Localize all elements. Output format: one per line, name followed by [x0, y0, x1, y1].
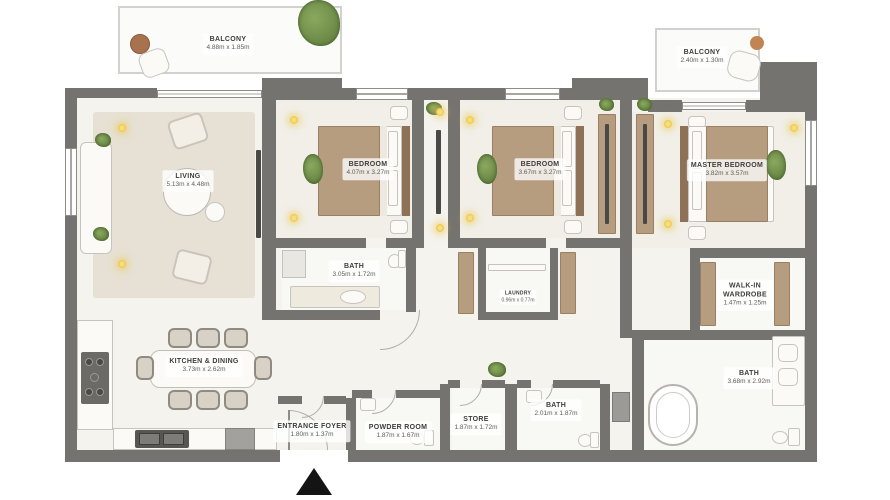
washer	[612, 392, 630, 422]
wardrobe-rail	[643, 124, 647, 224]
tv-unit	[436, 130, 441, 214]
ceiling-light-icon	[118, 124, 126, 132]
room-name: ENTRANCE FOYER	[277, 422, 346, 431]
plant-icon	[637, 98, 652, 111]
wall-bedroom2-bottom	[460, 238, 546, 248]
wall-bottom-right	[348, 450, 817, 462]
room-name: BATH	[333, 262, 376, 271]
room-label-bath2: BATH 2.01m x 1.87m	[531, 399, 582, 421]
wall-top-mid	[408, 88, 505, 100]
dishwasher	[225, 428, 255, 450]
wall-bath2-top-a	[517, 380, 531, 388]
wall-top-block1	[262, 78, 342, 100]
hall-closet	[458, 252, 474, 314]
bed-headboard	[576, 126, 584, 216]
balcony-right-stool	[750, 36, 764, 50]
ceiling-light-icon	[290, 214, 298, 222]
burner-icon	[85, 388, 93, 396]
wardrobe-rail	[605, 124, 609, 224]
sink-basin	[139, 433, 160, 445]
dining-chair	[224, 328, 248, 348]
entrance-arrow-icon	[296, 468, 332, 495]
burner-icon	[90, 373, 99, 382]
plant-icon	[477, 154, 497, 184]
room-dims: 1.87m x 1.72m	[455, 424, 498, 432]
room-dims: 5.13m x 4.48m	[167, 181, 210, 189]
wall-bottom-left	[65, 450, 280, 462]
sink	[340, 290, 366, 304]
room-label-walk-in-wardrobe: WALK-IN WARDROBE 1.47m x 1.25m	[717, 280, 773, 311]
room-label-master-bath: BATH 3.68m x 2.92m	[724, 367, 775, 389]
wall-powder-top-b	[396, 390, 440, 398]
wall-store-top-b	[482, 380, 505, 388]
nightstand	[390, 220, 408, 234]
room-name: BATH	[535, 401, 578, 410]
dining-chair	[224, 390, 248, 410]
ceiling-light-icon	[118, 260, 126, 268]
wall-laundry-bottom	[478, 312, 558, 320]
wall-top-stub1	[342, 88, 356, 100]
vanity-counter	[290, 286, 380, 308]
stove	[81, 352, 109, 404]
wall-top-master-left	[648, 100, 682, 112]
wall-top-living	[65, 88, 157, 98]
room-label-powder-room: POWDER ROOM 1.87m x 1.67m	[365, 421, 432, 443]
toilet-tank	[788, 428, 800, 446]
room-label-store: STORE 1.87m x 1.72m	[451, 413, 502, 435]
wall-top-block2	[572, 78, 648, 100]
ceiling-light-icon	[290, 116, 298, 124]
room-label-laundry: LAUNDRY 0.96m x 0.77m	[499, 290, 536, 305]
room-label-balcony-right: BALCONY 2.40m x 1.30m	[677, 46, 728, 68]
room-dims: 3.73m x 2.62m	[169, 366, 238, 374]
wall-laundry-right	[550, 248, 558, 320]
dining-chair	[254, 356, 272, 380]
plant-icon	[488, 362, 506, 377]
room-name: BEDROOM	[347, 160, 390, 169]
ceiling-light-icon	[436, 108, 444, 116]
room-label-entrance-foyer: ENTRANCE FOYER 1.80m x 1.37m	[273, 420, 350, 442]
room-dims: 1.87m x 1.67m	[369, 432, 428, 440]
toilet-tank	[590, 432, 599, 448]
wall-bath1-bottom	[276, 310, 380, 320]
burner-icon	[96, 358, 104, 366]
ceiling-light-icon	[790, 124, 798, 132]
wall-bath2-right	[600, 384, 610, 450]
wall-left	[65, 88, 77, 462]
room-label-bedroom2: BEDROOM 3.67m x 3.27m	[515, 158, 566, 180]
room-dims: 4.88m x 1.85m	[207, 44, 250, 52]
window-bedroom1	[356, 88, 408, 100]
wall-masterbath-top	[644, 330, 690, 340]
wall-top-right-block	[760, 62, 817, 100]
bathtub-inner	[656, 392, 690, 438]
burner-icon	[96, 388, 104, 396]
room-dims: 2.40m x 1.30m	[681, 57, 724, 65]
ceiling-light-icon	[664, 120, 672, 128]
burner-icon	[85, 358, 93, 366]
wall-foyer-top-b	[324, 396, 346, 404]
plant-icon	[95, 133, 111, 147]
ceiling-light-icon	[436, 224, 444, 232]
wardrobe	[774, 262, 790, 326]
room-name: MASTER BEDROOM	[691, 161, 763, 170]
wall-bedroom1-right	[412, 100, 424, 248]
slider-balcony-right	[682, 102, 746, 110]
room-dims: 1.47m x 1.25m	[721, 300, 769, 308]
bed-headboard	[402, 126, 410, 216]
wall-bedroom2-left	[448, 100, 460, 248]
room-dims: 4.07m x 3.27m	[347, 169, 390, 177]
room-name: KITCHEN & DINING	[169, 357, 238, 366]
ceiling-light-icon	[466, 116, 474, 124]
plant-icon	[766, 150, 786, 180]
room-dims: 0.96m x 0.77m	[501, 297, 534, 304]
wall-masterbath-left	[632, 330, 644, 450]
room-label-bedroom1: BEDROOM 4.07m x 3.27m	[343, 158, 394, 180]
window-master	[805, 120, 817, 186]
room-label-living: LIVING 5.13m x 4.48m	[163, 170, 214, 192]
side-table	[205, 202, 225, 222]
wall-store-bath2	[505, 384, 517, 450]
wall-bedroom1-bottom	[276, 238, 366, 248]
room-name: LIVING	[167, 172, 210, 181]
slider-balcony-left	[157, 90, 262, 98]
ceiling-light-icon	[664, 220, 672, 228]
wall-foyer-top-a	[278, 396, 302, 404]
wall-top-master-right	[746, 100, 805, 112]
room-dims: 3.68m x 2.92m	[728, 378, 771, 386]
wall-laundry-left	[478, 248, 486, 320]
room-dims: 3.82m x 3.57m	[691, 170, 763, 178]
room-label-bath1: BATH 3.05m x 1.72m	[329, 260, 380, 282]
wall-powder-top-a	[352, 390, 372, 398]
dining-chair	[136, 356, 154, 380]
sink-basin	[163, 433, 184, 445]
wall-master-bottom	[690, 248, 805, 258]
room-dims: 2.01m x 1.87m	[535, 410, 578, 418]
room-dims: 1.80m x 1.37m	[277, 431, 346, 439]
wall-bedroom1-bottom-b	[386, 238, 412, 248]
dining-chair	[168, 328, 192, 348]
dining-chair	[196, 328, 220, 348]
nightstand	[564, 220, 582, 234]
dining-chair	[196, 390, 220, 410]
hall-closet	[560, 252, 576, 314]
wall-wardrobe-left	[690, 258, 700, 334]
shower	[282, 250, 306, 278]
ceiling-light-icon	[466, 214, 474, 222]
room-name: BATH	[728, 369, 771, 378]
tv-unit	[256, 150, 261, 238]
nightstand	[688, 226, 706, 240]
kitchen-sink	[135, 430, 189, 448]
laundry-door	[488, 264, 546, 271]
wall-powder-store	[440, 384, 450, 450]
plant-icon	[303, 154, 323, 184]
wall-bath1-right	[406, 248, 416, 312]
room-name: BALCONY	[207, 35, 250, 44]
room-dims: 3.05m x 1.72m	[333, 271, 376, 279]
wall-living-divider	[262, 100, 276, 320]
floor-plan: BALCONY 4.88m x 1.85m BALCONY 2.40m x 1.…	[0, 0, 890, 500]
room-name: STORE	[455, 415, 498, 424]
plant-icon	[298, 0, 340, 46]
wardrobe	[700, 262, 716, 326]
room-name: POWDER ROOM	[369, 423, 428, 432]
room-dims: 3.67m x 3.27m	[519, 169, 562, 177]
room-label-kitchen-dining: KITCHEN & DINING 3.73m x 2.62m	[165, 355, 242, 377]
room-name: BALCONY	[681, 48, 724, 57]
plant-icon	[599, 98, 614, 111]
nightstand	[390, 106, 408, 120]
sink	[360, 398, 376, 411]
toilet-tank	[398, 250, 406, 268]
window-living	[65, 148, 77, 216]
toilet	[772, 431, 788, 444]
wall-bath2-top-b	[553, 380, 600, 388]
wall-store-top-a	[448, 380, 460, 388]
sink	[778, 368, 798, 386]
nightstand	[564, 106, 582, 120]
dining-chair	[168, 390, 192, 410]
room-label-master-bedroom: MASTER BEDROOM 3.82m x 3.57m	[687, 159, 767, 181]
window-bedroom2	[505, 88, 560, 100]
wall-center	[620, 88, 632, 338]
wall-bedroom2-bottom-b	[566, 238, 620, 248]
room-name: WALK-IN WARDROBE	[721, 282, 769, 300]
room-name: BEDROOM	[519, 160, 562, 169]
room-name: LAUNDRY	[501, 291, 534, 298]
sink	[778, 344, 798, 362]
room-label-balcony-left: BALCONY 4.88m x 1.85m	[203, 33, 254, 55]
plant-icon	[93, 227, 109, 241]
